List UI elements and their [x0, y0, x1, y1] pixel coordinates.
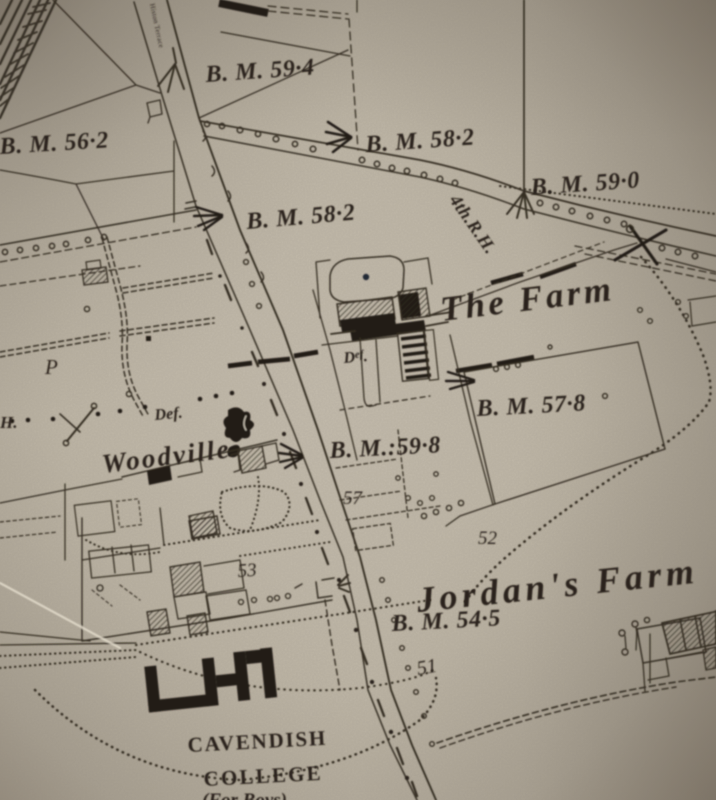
svg-text:H.: H.	[0, 413, 17, 432]
svg-text:Def.: Def.	[342, 348, 368, 367]
svg-text:(For Boys): (For Boys)	[202, 790, 287, 800]
svg-text:Def.: Def.	[153, 405, 183, 424]
svg-text:P: P	[44, 355, 58, 379]
svg-text:52: 52	[478, 528, 498, 549]
svg-text:53: 53	[237, 560, 257, 582]
svg-text:51: 51	[415, 655, 439, 680]
svg-text:57: 57	[343, 488, 364, 509]
